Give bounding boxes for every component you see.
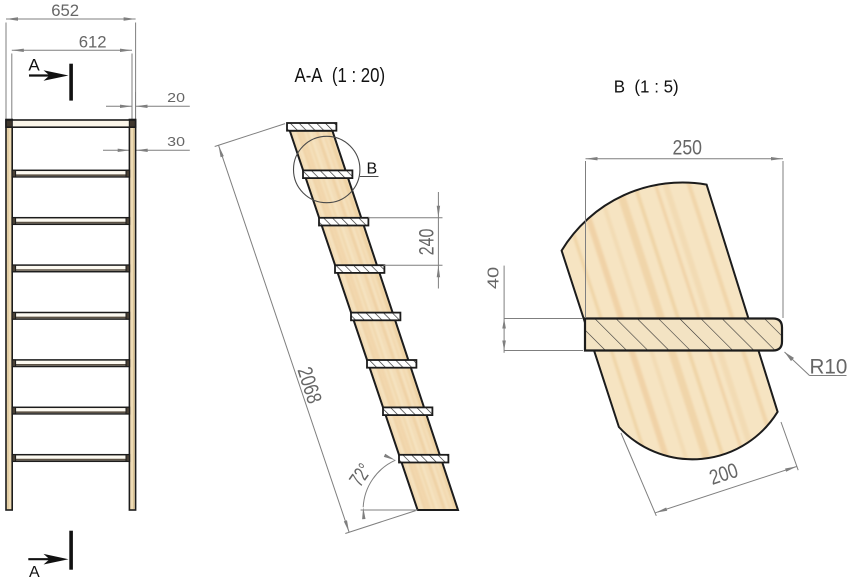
- svg-text:30: 30: [167, 134, 185, 149]
- svg-text:40: 40: [486, 267, 503, 289]
- svg-text:250: 250: [673, 137, 703, 160]
- svg-text:A-A (1 : 20): A-A (1 : 20): [295, 64, 386, 87]
- svg-text:240: 240: [416, 229, 439, 256]
- svg-text:652: 652: [51, 1, 79, 20]
- svg-text:R10: R10: [810, 355, 848, 378]
- svg-text:A: A: [29, 564, 40, 581]
- svg-text:A: A: [28, 56, 40, 75]
- svg-text:B (1 : 5): B (1 : 5): [614, 77, 679, 97]
- svg-text:B: B: [367, 161, 378, 178]
- svg-text:200: 200: [707, 459, 741, 490]
- svg-text:72°: 72°: [345, 460, 376, 491]
- svg-text:612: 612: [79, 32, 107, 51]
- svg-text:2068: 2068: [292, 364, 325, 406]
- svg-text:20: 20: [167, 90, 185, 105]
